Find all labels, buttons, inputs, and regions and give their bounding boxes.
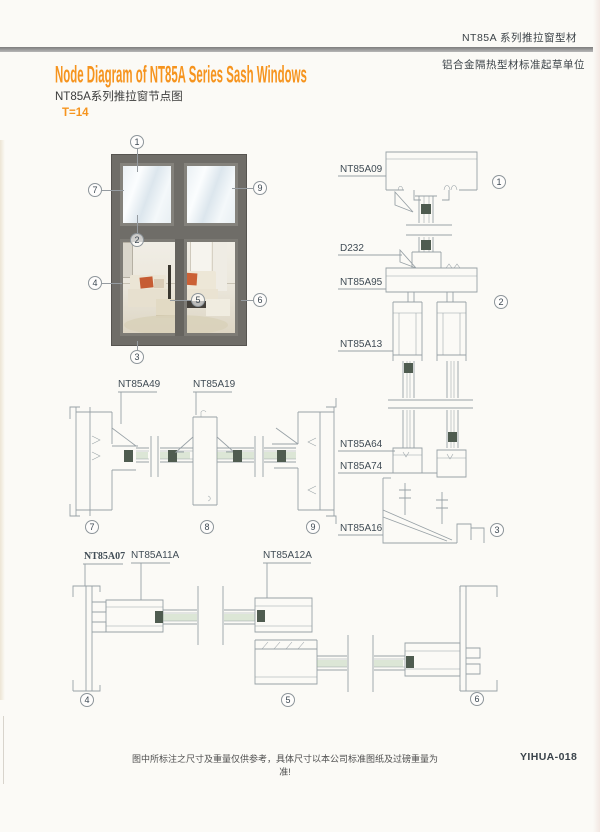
right-jamb-profile <box>460 586 497 691</box>
leader-line <box>232 188 253 189</box>
callout-8-section: 8 <box>200 520 214 534</box>
callout-3-window: 3 <box>130 350 144 364</box>
page-title: Node Diagram of NT85A Series Sash Window… <box>55 61 307 89</box>
profile-label-nt85a49: NT85A49 <box>118 379 160 390</box>
fixed-pane-right <box>184 163 238 226</box>
disclaimer-text: 图中所标注之尺寸及重量仅供参考，具体尺寸以本公司标准图纸及过磅重量为准! <box>130 752 440 778</box>
label-leader-lines <box>118 392 232 424</box>
page-subtitle: NT85A系列推拉窗节点图 <box>55 88 183 104</box>
thickness-note: T=14 <box>62 107 89 119</box>
callout-3-section: 3 <box>490 523 504 537</box>
profile-label-d232: D232 <box>340 243 364 254</box>
horizontal-section-row-456 <box>60 548 510 712</box>
sliding-sash-left <box>120 239 178 336</box>
callout-5-window: 5 <box>191 293 205 307</box>
leader-line <box>241 300 253 301</box>
catalog-page: NT85A 系列推拉窗型材 铝合金隔热型材标准起草单位 Node Diagram… <box>0 0 600 832</box>
header-divider-bar <box>0 47 593 52</box>
window-illustration <box>112 155 246 345</box>
leader-line <box>170 300 191 301</box>
callout-2-window: 2 <box>130 233 144 247</box>
series-label: NT85A 系列推拉窗型材 <box>462 30 577 45</box>
profile-label-nt85a16: NT85A16 <box>340 523 382 534</box>
head-frame-profile <box>386 152 477 212</box>
profile-label-nt85a13: NT85A13 <box>340 339 382 350</box>
glazing-run-right <box>217 436 296 477</box>
callout-1-section: 1 <box>492 175 506 189</box>
profile-label-nt85a09: NT85A09 <box>340 164 382 175</box>
callout-7-window: 7 <box>88 183 102 197</box>
profile-label-nt85a19: NT85A19 <box>193 379 235 390</box>
sash-box-12a <box>255 598 317 684</box>
callout-7-section: 7 <box>85 520 99 534</box>
profile-label-nt85a11a: NT85A11A <box>131 550 179 561</box>
glazing-run-a <box>163 586 255 645</box>
callout-6-section: 6 <box>470 692 484 706</box>
callout-4-section: 4 <box>80 693 94 707</box>
callout-5-section: 5 <box>281 693 295 707</box>
profile-label-nt85a74: NT85A74 <box>340 461 382 472</box>
left-jamb-profile <box>73 586 106 691</box>
sash-box-right <box>405 643 460 676</box>
leader-line <box>137 215 138 233</box>
org-label: 铝合金隔热型材标准起草单位 <box>442 57 585 72</box>
sash-box-11a <box>106 600 163 632</box>
horizontal-section-row-789 <box>60 378 345 545</box>
glazing-run-left <box>124 436 193 477</box>
fixed-pane-left <box>120 163 174 226</box>
sill-profile <box>383 478 484 543</box>
profile-label-nt85a07: NT85A07 <box>84 551 125 562</box>
glazing-run-b <box>317 635 405 692</box>
label-leader-lines <box>83 563 311 600</box>
callout-1-window: 1 <box>130 135 144 149</box>
meeting-stile <box>175 239 184 336</box>
sliding-sash-right <box>184 239 238 336</box>
callout-6-window: 6 <box>253 293 267 307</box>
callout-2-section: 2 <box>494 295 508 309</box>
callout-4-window: 4 <box>88 276 102 290</box>
page-code: YIHUA-018 <box>520 751 577 763</box>
leader-line <box>102 283 122 284</box>
transom-profile <box>386 264 477 302</box>
leader-line <box>102 190 124 191</box>
leader-line <box>137 341 138 350</box>
sash-columns <box>388 302 473 477</box>
profile-label-nt85a12a: NT85A12A <box>263 550 312 561</box>
scan-scratch <box>3 716 4 784</box>
profile-label-nt85a64: NT85A64 <box>340 439 382 450</box>
scan-edge-left <box>0 140 5 700</box>
callout-9-window: 9 <box>253 181 267 195</box>
callout-9-section: 9 <box>306 520 320 534</box>
leader-line <box>137 149 138 172</box>
profile-label-nt85a95: NT85A95 <box>340 277 382 288</box>
scan-edge-right <box>593 0 600 832</box>
